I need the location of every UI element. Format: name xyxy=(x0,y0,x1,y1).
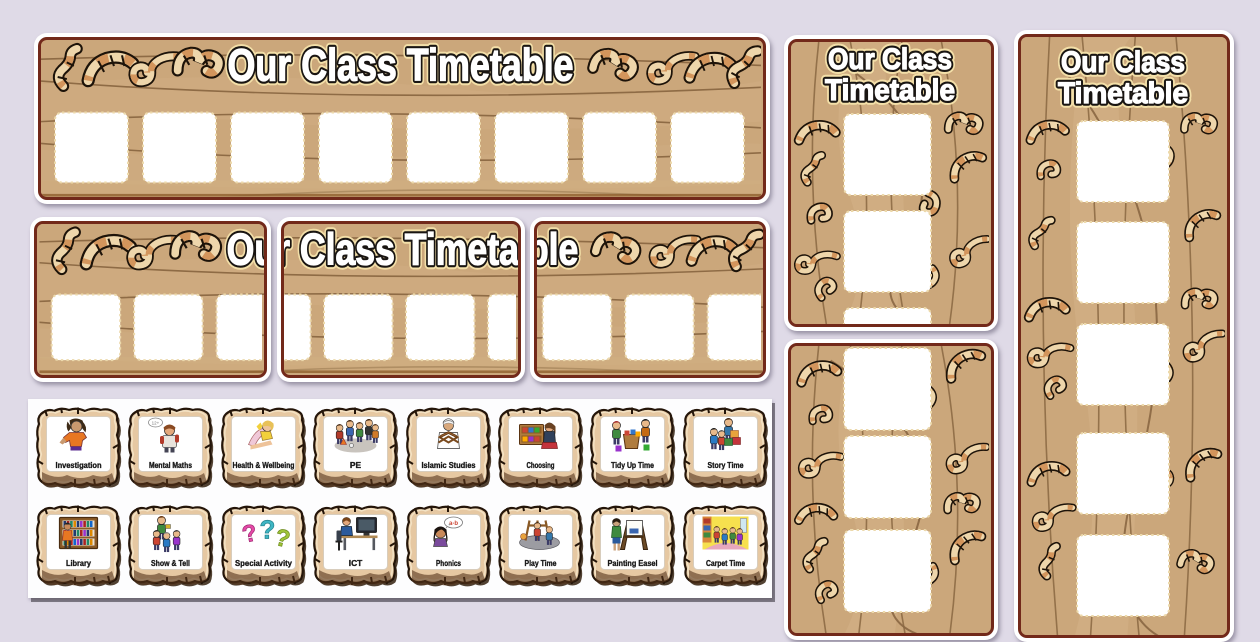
svg-text:Library: Library xyxy=(66,558,91,568)
svg-text:Health & Wellbeing: Health & Wellbeing xyxy=(232,460,294,470)
svg-text:12+: 12+ xyxy=(152,421,160,426)
svg-text:?: ? xyxy=(259,515,275,545)
svg-text:Choosing: Choosing xyxy=(527,460,555,470)
svg-text:Tidy Up Time: Tidy Up Time xyxy=(611,460,654,470)
svg-text:Special Activity: Special Activity xyxy=(235,558,292,568)
svg-text:Show & Tell: Show & Tell xyxy=(151,558,190,568)
svg-text:a-b: a-b xyxy=(449,521,458,527)
svg-text:Phonics: Phonics xyxy=(436,558,461,568)
svg-text:Play Time: Play Time xyxy=(525,558,557,568)
svg-text:Islamic Studies: Islamic Studies xyxy=(421,460,475,470)
svg-text:Painting Easel: Painting Easel xyxy=(608,558,658,568)
svg-text:Investigation: Investigation xyxy=(56,460,102,470)
svg-text:ICT: ICT xyxy=(349,558,363,568)
svg-text:Carpet Time: Carpet Time xyxy=(706,558,745,568)
svg-text:Story Time: Story Time xyxy=(707,460,743,470)
svg-text:PE: PE xyxy=(350,460,362,470)
svg-text:Mental Maths: Mental Maths xyxy=(149,460,192,470)
